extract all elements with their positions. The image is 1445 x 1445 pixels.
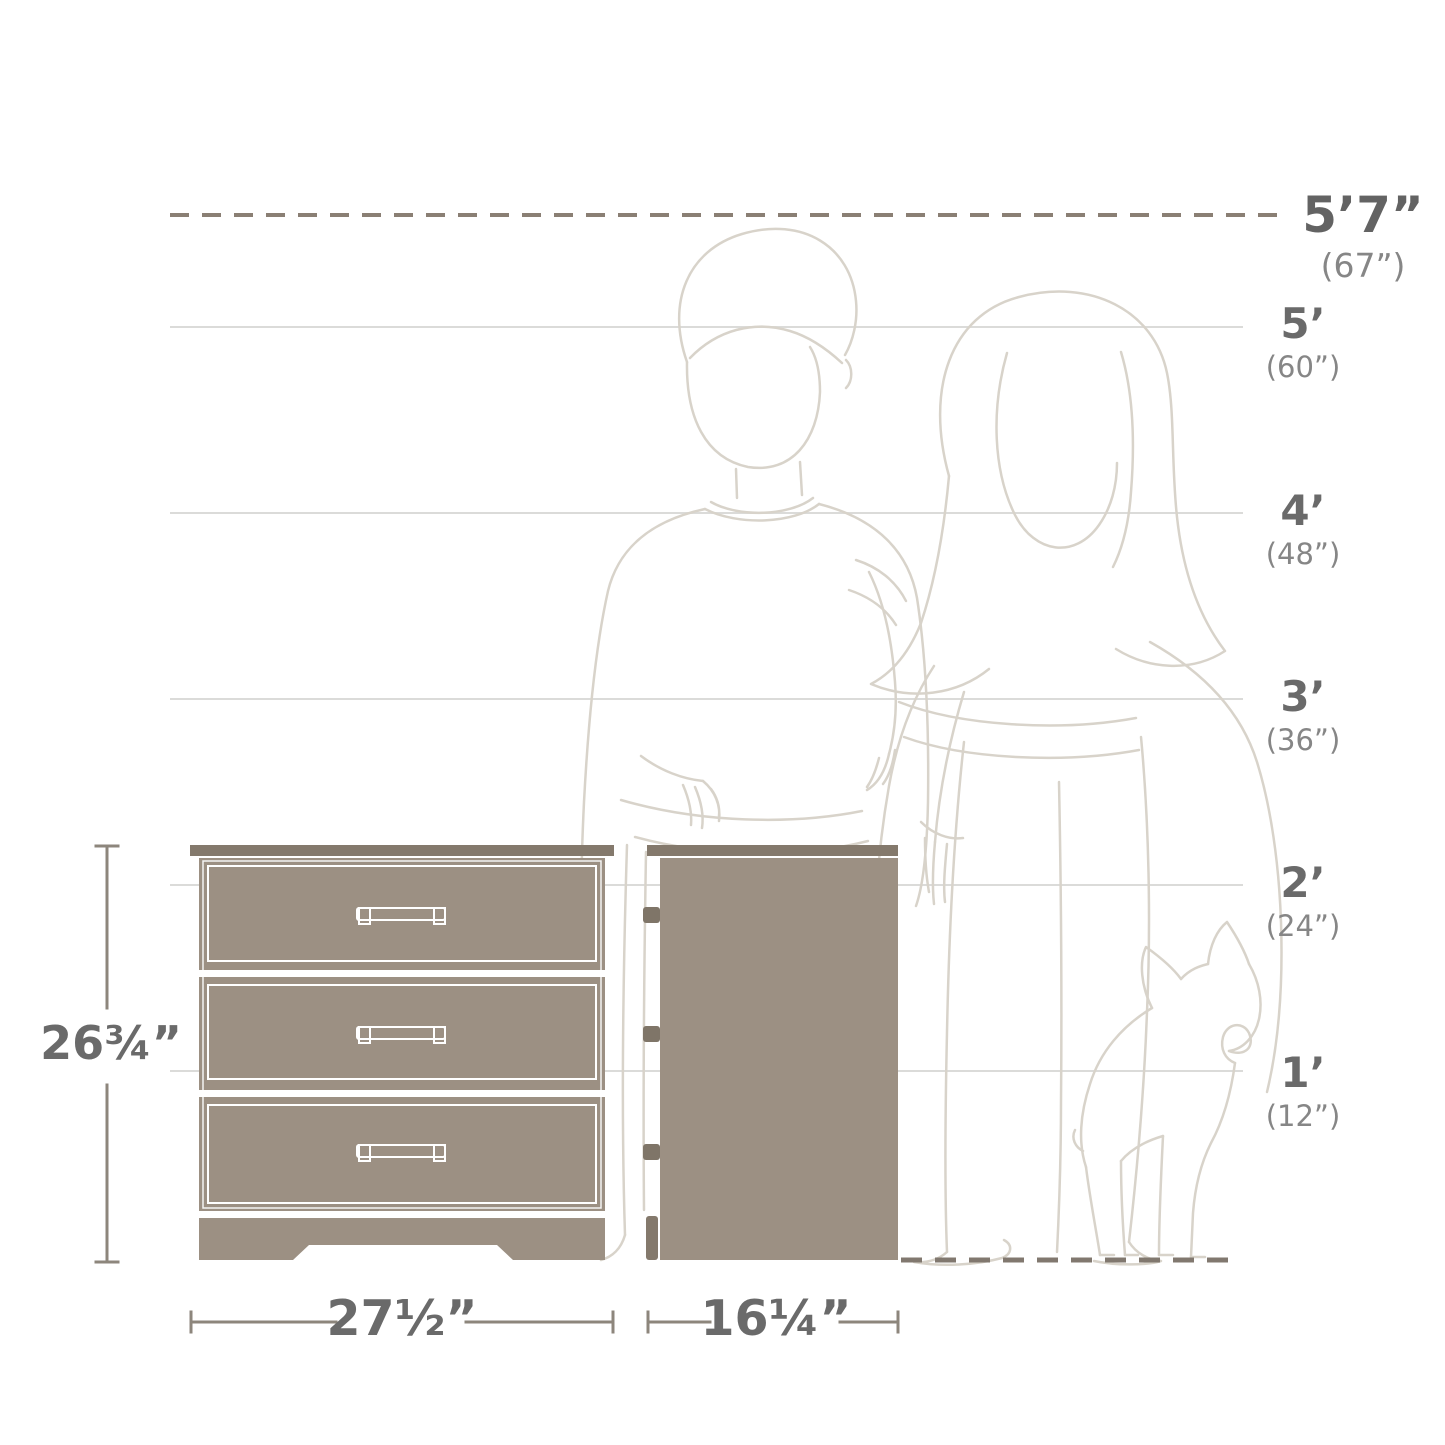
max-height-feet: 5’7” bbox=[1302, 186, 1423, 244]
scale-mark-2ft: 2’ (24”) bbox=[1248, 858, 1358, 943]
scale-sublabel: (12”) bbox=[1266, 1099, 1341, 1133]
height-dimension-label: 26¾” bbox=[0, 1018, 222, 1070]
depth-dimension-label: 16¼” bbox=[656, 1292, 896, 1347]
scale-label: 2’ bbox=[1280, 858, 1325, 907]
scale-mark-4ft: 4’ (48”) bbox=[1248, 486, 1358, 571]
french-bulldog-outline bbox=[1073, 922, 1260, 1257]
scale-sublabel: (24”) bbox=[1266, 909, 1341, 943]
scale-mark-3ft: 3’ (36”) bbox=[1248, 672, 1358, 757]
drawer-separator bbox=[199, 970, 605, 977]
dresser-side-view bbox=[643, 845, 898, 1260]
scale-mark-1ft: 1’ (12”) bbox=[1248, 1048, 1358, 1133]
width-dimension-label: 27½” bbox=[282, 1292, 522, 1347]
scale-label: 1’ bbox=[1280, 1048, 1325, 1097]
drawer-separator bbox=[199, 1090, 605, 1097]
side-top-board bbox=[647, 845, 898, 856]
woman-outline bbox=[871, 292, 1281, 1265]
side-handle-nub bbox=[643, 907, 660, 923]
max-height-inches: (67”) bbox=[1321, 246, 1406, 285]
scale-sublabel: (48”) bbox=[1266, 537, 1341, 571]
scale-label: 5’ bbox=[1280, 299, 1325, 348]
dimension-diagram: 5’7” (67”) 5’ (60”) 4’ (48”) 3’ (36”) 2’… bbox=[0, 0, 1445, 1445]
scale-label: 3’ bbox=[1280, 672, 1325, 721]
front-top-board bbox=[190, 845, 614, 856]
max-height-label: 5’7” (67”) bbox=[1288, 186, 1438, 285]
diagram-graphics bbox=[0, 0, 1445, 1445]
scale-sublabel: (60”) bbox=[1266, 350, 1341, 384]
side-handle-nub bbox=[643, 1144, 660, 1160]
scale-label: 4’ bbox=[1280, 486, 1325, 535]
front-body bbox=[199, 858, 605, 1211]
dresser-front-view bbox=[190, 845, 614, 1260]
side-foot bbox=[646, 1216, 658, 1260]
front-base bbox=[199, 1218, 605, 1260]
scale-sublabel: (36”) bbox=[1266, 723, 1341, 757]
side-body bbox=[660, 858, 898, 1260]
scale-mark-5ft: 5’ (60”) bbox=[1248, 299, 1358, 384]
side-handle-nub bbox=[643, 1026, 660, 1042]
